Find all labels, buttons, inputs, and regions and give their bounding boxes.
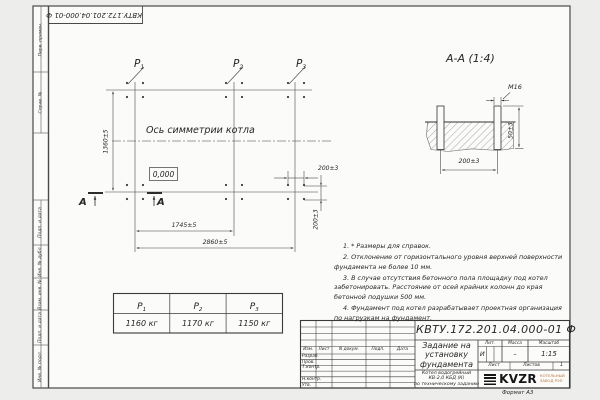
dim-bolt-horizontal: 200±3 bbox=[318, 166, 338, 172]
lit-header: Лит. bbox=[478, 342, 502, 346]
scale-value: 1:15 bbox=[528, 347, 570, 363]
load-point-label-p3: Р3 bbox=[296, 54, 306, 70]
note-2: 2. Отклонение от горизонтального уровня … bbox=[334, 253, 568, 272]
strip-cell-inv-dubl: Инв. № дубл. bbox=[33, 245, 48, 278]
mass-value: – bbox=[502, 347, 528, 363]
drawing-sheet: КВТУ.172.201.04.000-01 Ф Перв. примен. С… bbox=[0, 0, 600, 400]
dim-protrusion-50: 50±3 bbox=[506, 113, 517, 147]
load-table-header-1: Р1 bbox=[114, 294, 170, 314]
dim-span-1745: 1745±5 bbox=[150, 223, 218, 229]
dim-height-1360: 1360±5 bbox=[101, 90, 112, 192]
kvzr-logo-icon bbox=[484, 374, 496, 385]
kvzr-logo-caption: КОТЕЛЬНЫЙ ЗАВОД РЭП bbox=[540, 374, 565, 383]
section-letter-left: А bbox=[79, 198, 87, 208]
col-header-list: Лист bbox=[316, 348, 332, 352]
row-label-tkontr: Т.контр. bbox=[302, 366, 321, 370]
section-letter-right: А bbox=[157, 198, 165, 208]
strip-cell-inv-podl: Инв. № подл. bbox=[33, 345, 48, 388]
kvzr-logo: KVZR КОТЕЛЬНЫЙ ЗАВОД РЭП bbox=[479, 371, 570, 388]
load-table-header-3: Р3 bbox=[226, 294, 282, 314]
row-label-razrab: Разраб. bbox=[302, 355, 319, 359]
scale-header: Масштаб bbox=[528, 342, 570, 346]
load-table-value-2: 1170 кг bbox=[170, 314, 226, 334]
strip-cell-sprav-n: Справ. № bbox=[33, 72, 48, 133]
format-label: Формат А3 bbox=[502, 391, 533, 397]
sheets-label: Листов bbox=[510, 362, 553, 370]
dim-bolt-vertical: 200±3 bbox=[311, 202, 322, 236]
kvzr-logo-text: KVZR bbox=[499, 372, 537, 386]
col-header-ndokum: N докум. bbox=[332, 348, 366, 352]
strip-cell-perv-primen: Перв. примен. bbox=[33, 6, 48, 72]
sheet-label: Лист bbox=[478, 362, 510, 370]
col-header-izm: Изм. bbox=[301, 348, 317, 352]
row-label-nkontr: Н.контр. bbox=[302, 378, 321, 382]
dim-span-2860: 2860±5 bbox=[181, 240, 249, 246]
load-table-header-2: Р2 bbox=[170, 294, 226, 314]
strip-cell-podp-data-1: Подп. и дата bbox=[33, 200, 48, 245]
load-table-value-3: 1150 кг bbox=[226, 314, 282, 334]
note-1: 1. * Размеры для справок. bbox=[334, 242, 568, 252]
notes-block: 1. * Размеры для справок. 2. Отклонение … bbox=[334, 242, 568, 325]
elevation-mark: 0,000 bbox=[150, 168, 178, 181]
col-header-data: Дата bbox=[390, 348, 415, 352]
symmetry-axis-label: Ось симметрии котла bbox=[146, 126, 255, 136]
title-block-title: Задание на установку фундамента bbox=[415, 341, 478, 369]
title-block-doc-number: КВТУ.172.201.04.000-01 Ф bbox=[416, 321, 569, 339]
dim-section-spacing-200: 200±3 bbox=[442, 159, 496, 165]
load-point-label-p1: Р1 bbox=[134, 54, 144, 70]
note-3: 3. В случае отсутствия бетонного пола пл… bbox=[334, 274, 568, 303]
lit-value: И bbox=[478, 347, 487, 363]
bolt-thread-label: М16 bbox=[508, 84, 522, 91]
section-title: А-А (1:4) bbox=[446, 53, 495, 64]
row-label-utv: Утв. bbox=[302, 384, 311, 388]
strip-cell-podp-data-2: Подп. и дата bbox=[33, 310, 48, 345]
strip-cell-vzam-inv: Взам. инв. № bbox=[33, 278, 48, 310]
load-table-value-1: 1160 кг bbox=[114, 314, 170, 334]
sheets-value: 1 bbox=[553, 362, 570, 370]
mass-header: Масса bbox=[502, 342, 528, 346]
load-point-label-p2: Р2 bbox=[233, 54, 243, 70]
product-description: Котел водогрейный КВ-2,0 КБД (К) по техн… bbox=[415, 371, 478, 388]
col-header-podp: Подп. bbox=[366, 348, 390, 352]
flipped-doc-number: КВТУ.172.201.04.000-01 Ф bbox=[48, 7, 142, 22]
